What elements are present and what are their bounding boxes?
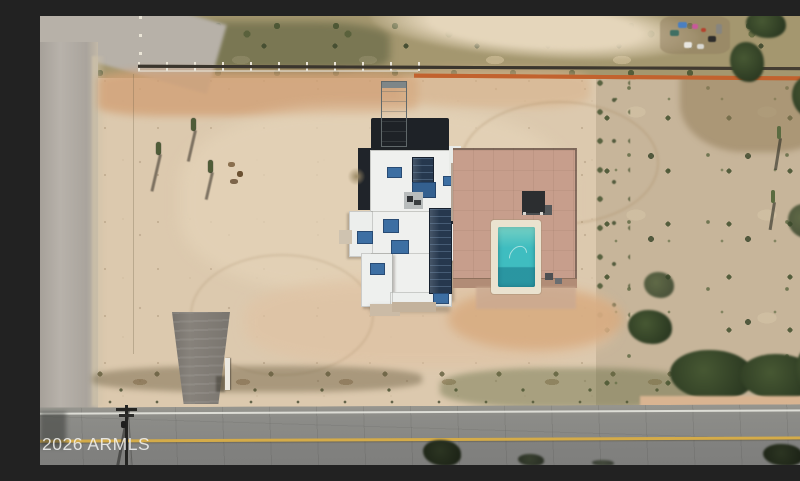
walkway xyxy=(392,302,436,312)
teal-object xyxy=(670,30,679,36)
tree-over-road xyxy=(423,440,461,465)
skylight xyxy=(357,231,373,244)
yard-debris xyxy=(237,171,243,177)
utility-pole-crossarm xyxy=(119,414,134,417)
south-wing-roof xyxy=(361,253,393,307)
patio-furniture xyxy=(545,205,552,215)
gate-shadow xyxy=(216,376,225,392)
aerial-photo: 2026 ARMLS xyxy=(40,16,800,465)
dirt-road-west xyxy=(40,42,98,408)
tall-shed-roof xyxy=(381,81,407,147)
gate-post xyxy=(225,358,230,390)
white-appliance xyxy=(697,44,704,49)
skylight xyxy=(370,263,385,275)
blue-tarp xyxy=(678,22,687,28)
ac-unit xyxy=(414,200,421,205)
pole-transformer xyxy=(121,421,126,428)
skylight xyxy=(387,167,402,178)
ac-unit xyxy=(407,196,413,202)
tree xyxy=(628,310,672,344)
west-boundary-line xyxy=(133,74,134,354)
yard-debris xyxy=(230,179,238,184)
saguaro-cactus xyxy=(771,190,775,203)
yard-debris xyxy=(228,162,235,167)
utility-pole-crossarm xyxy=(116,408,137,411)
fence-rail xyxy=(138,70,418,72)
dark-object xyxy=(708,36,716,42)
pergola-leg xyxy=(523,212,526,215)
pink-object xyxy=(692,24,698,29)
pool-equipment xyxy=(545,273,553,280)
pergola-leg xyxy=(540,212,543,215)
gray-object xyxy=(716,24,722,34)
skylight xyxy=(383,219,399,233)
white-appliance xyxy=(684,42,692,48)
solar-panel-array xyxy=(429,208,452,294)
roadside-scrub-dark xyxy=(92,366,422,392)
west-fence xyxy=(139,16,142,68)
roof-seam xyxy=(392,254,393,306)
saguaro-cactus xyxy=(777,126,781,139)
skylight xyxy=(391,240,409,254)
tree xyxy=(730,42,764,82)
junk-pile xyxy=(660,16,730,54)
tree-over-road xyxy=(518,454,544,465)
pool-equipment xyxy=(555,278,562,284)
mls-watermark: 2026 ARMLS xyxy=(42,434,150,455)
tree-over-road xyxy=(592,460,614,465)
walkway xyxy=(339,230,352,244)
tree-over-road xyxy=(763,444,800,465)
tree xyxy=(644,272,674,298)
red-object xyxy=(701,28,706,32)
bush xyxy=(348,168,365,185)
